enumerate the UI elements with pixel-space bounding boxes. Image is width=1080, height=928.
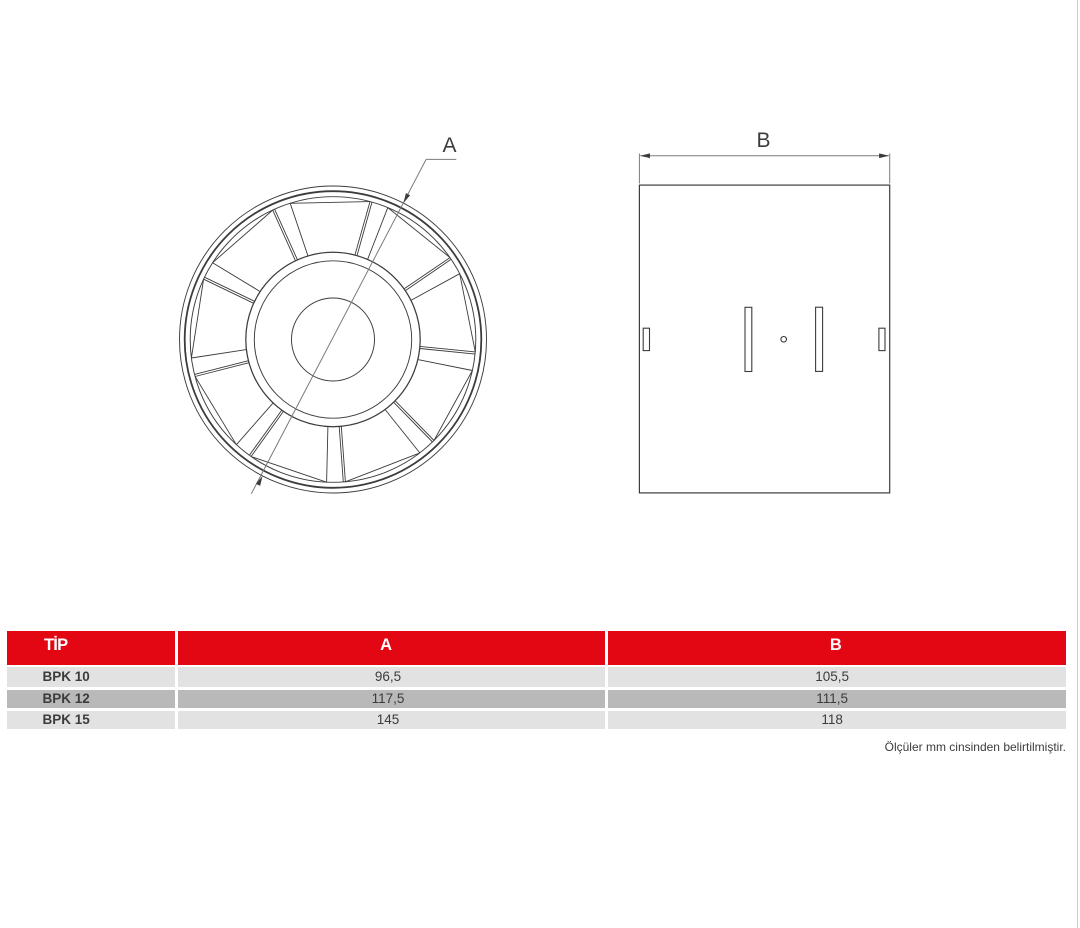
svg-text:B: B (756, 129, 770, 152)
svg-text:A: A (442, 134, 456, 157)
